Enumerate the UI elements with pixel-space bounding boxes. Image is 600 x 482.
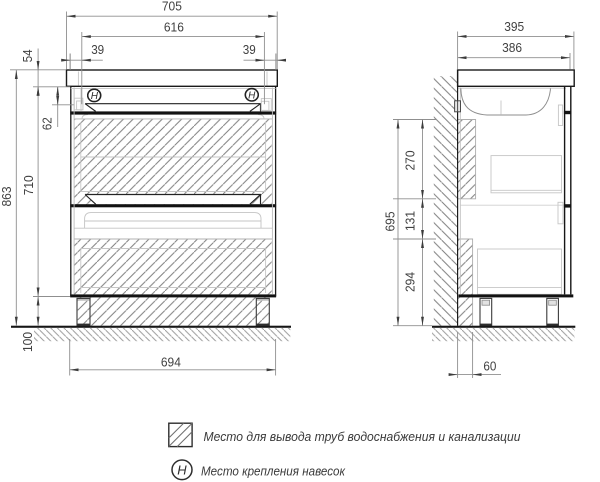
svg-text:H: H — [91, 91, 99, 102]
svg-text:386: 386 — [502, 40, 522, 55]
svg-text:294: 294 — [403, 272, 418, 292]
svg-text:863: 863 — [0, 187, 14, 207]
svg-text:695: 695 — [383, 212, 398, 232]
svg-text:54: 54 — [20, 49, 35, 62]
svg-text:710: 710 — [21, 175, 36, 195]
svg-text:131: 131 — [403, 211, 418, 231]
svg-text:270: 270 — [403, 151, 418, 171]
svg-text:62: 62 — [40, 117, 55, 130]
svg-text:395: 395 — [504, 19, 524, 34]
svg-text:616: 616 — [164, 19, 184, 34]
svg-text:705: 705 — [162, 0, 182, 14]
svg-text:39: 39 — [91, 42, 104, 57]
svg-text:Место крепления навесок: Место крепления навесок — [201, 465, 346, 479]
svg-text:60: 60 — [483, 358, 496, 373]
svg-text:H: H — [248, 90, 256, 101]
svg-text:100: 100 — [20, 332, 35, 352]
svg-text:694: 694 — [161, 354, 181, 369]
svg-text:Место для вывода труб водоснаб: Место для вывода труб водоснабжения и ка… — [204, 430, 521, 444]
svg-text:H: H — [177, 463, 187, 478]
svg-text:39: 39 — [243, 42, 256, 57]
